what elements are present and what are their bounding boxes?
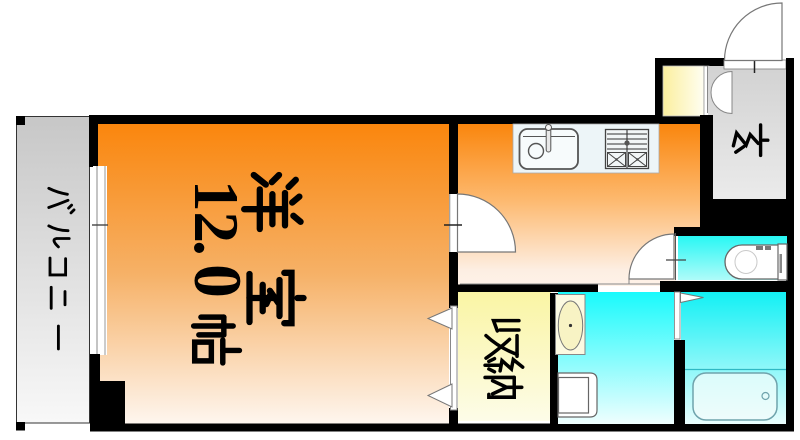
svg-text:12.0: 12.0 bbox=[180, 180, 256, 298]
